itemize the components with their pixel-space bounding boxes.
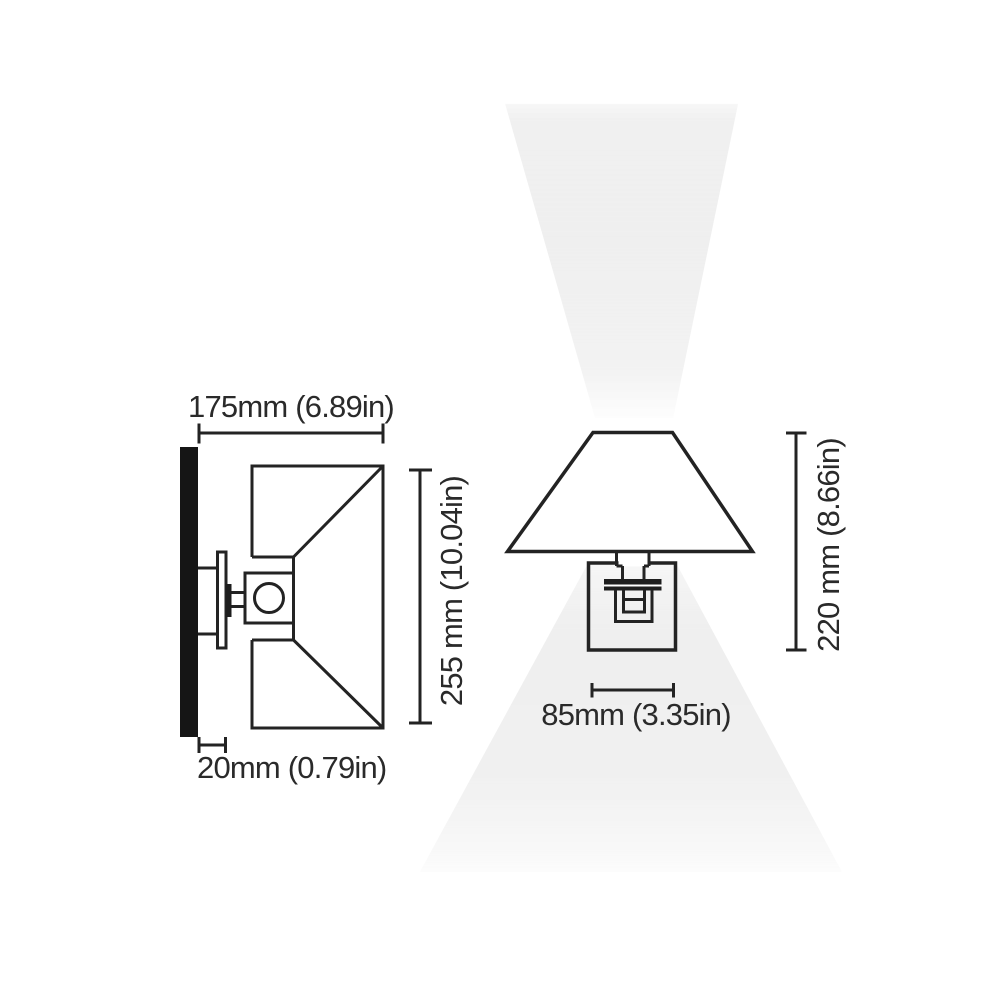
dimension-label-backplate-depth: 20mm (0.79in) — [197, 751, 386, 785]
backplate-front — [589, 563, 676, 650]
dimension-label-overall-height: 220 mm (8.66in) — [812, 438, 846, 652]
dimension-label-backplate-width: 85mm (3.35in) — [541, 698, 730, 732]
lamp-shade — [508, 433, 753, 552]
dimension-projection — [199, 424, 383, 444]
shade-corner-seam-upper — [294, 466, 384, 557]
front-view — [508, 433, 807, 698]
dimension-overall-height — [786, 433, 807, 650]
shade-top-rim-upper-edge — [252, 557, 294, 573]
bracket-collar — [226, 584, 232, 617]
wall-section — [180, 447, 198, 737]
dimension-diagram: 175mm (6.89in) 255 mm (10.04in) 20mm (0.… — [0, 0, 1000, 1000]
neck-cutout — [619, 555, 648, 567]
candle-holder-bracket — [616, 590, 653, 622]
dimension-label-shade-width: 255 mm (10.04in) — [435, 476, 469, 706]
shade-top-rim-lower-edge — [252, 623, 294, 640]
backplate-profile — [218, 552, 227, 648]
line-art — [0, 0, 1000, 1000]
dimension-label-projection: 175mm (6.89in) — [188, 390, 394, 424]
lamp-socket — [255, 584, 284, 613]
dimension-shade-width — [409, 470, 432, 723]
dimension-backplate-width — [592, 683, 674, 698]
plan-view — [180, 424, 432, 754]
shade-corner-seam-lower — [294, 640, 384, 728]
